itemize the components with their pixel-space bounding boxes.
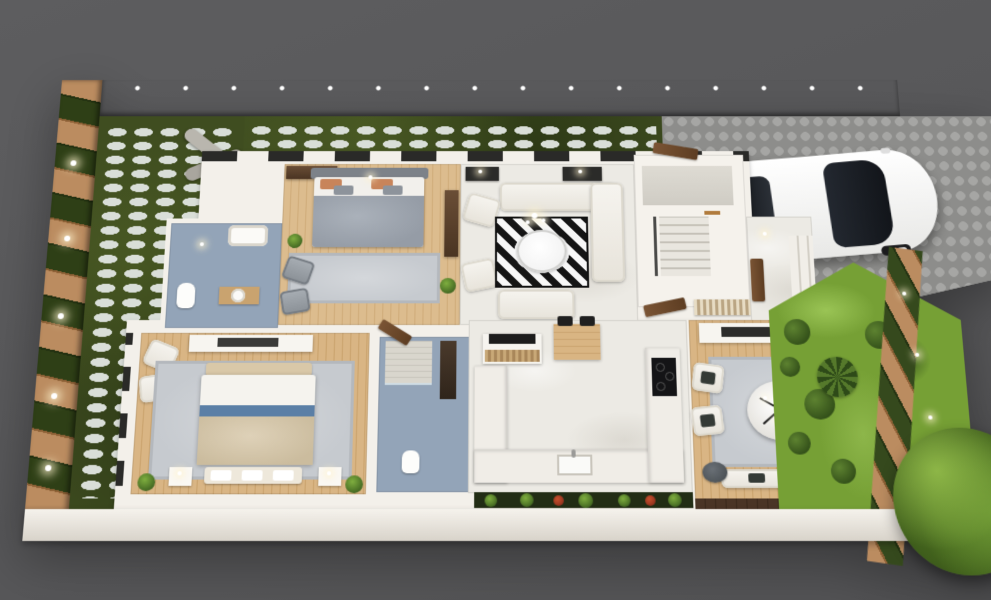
fence-light (928, 415, 932, 419)
room-kitchen (468, 320, 693, 493)
blanket-grey (312, 196, 424, 247)
toilet (402, 450, 420, 473)
plot-front-wall (22, 509, 967, 541)
chandelier-bulb (541, 219, 545, 223)
pillow-grey (334, 186, 354, 195)
black-chair (580, 316, 595, 326)
room-bedroom2 (278, 164, 461, 325)
console-lamp (578, 170, 582, 174)
nightstand (168, 467, 192, 486)
console-table (466, 167, 499, 181)
kitchen-sink (557, 455, 593, 476)
chandelier-bulb (526, 220, 530, 224)
bed (312, 177, 424, 247)
fence-light (902, 292, 906, 296)
potted-plant (287, 234, 302, 248)
corner-sofa-arm (590, 183, 625, 282)
bar-top (489, 334, 536, 344)
planter-strip (474, 492, 693, 508)
fence-light (915, 353, 919, 357)
side-stool (702, 462, 728, 483)
rattan-front (485, 350, 540, 362)
shower-glass (385, 383, 432, 385)
black-chair (557, 316, 572, 326)
slatted-screen (694, 299, 751, 315)
potted-plant (345, 475, 363, 493)
stair-handrail (704, 211, 720, 215)
stair-landing (642, 166, 734, 205)
plot (22, 80, 967, 541)
red-flowers (553, 495, 564, 506)
breakfast-table (554, 324, 601, 360)
car-mirror (880, 148, 891, 154)
console-table (563, 167, 602, 181)
tv-cabinet (444, 190, 458, 257)
toilet (176, 283, 196, 308)
nightstand (318, 467, 341, 486)
room-bathroom1 (159, 219, 287, 333)
render-stage (0, 0, 991, 600)
bar-island (483, 334, 542, 364)
porch-light (763, 232, 767, 236)
room-stair-hall (634, 155, 751, 307)
beige-throw (197, 416, 315, 465)
armchair-white (460, 258, 498, 293)
room-master-bedroom (130, 333, 369, 494)
bath-vanity (440, 341, 457, 399)
potted-plant (137, 473, 156, 491)
dresser-top (217, 338, 278, 347)
armchair-white (691, 362, 724, 394)
stair-rail (653, 217, 658, 276)
staircase (659, 217, 711, 276)
armchair (280, 287, 311, 315)
front-yard-top (243, 116, 663, 155)
armchair-white (690, 405, 725, 437)
master-bed (197, 375, 316, 465)
chandelier-bulb (763, 396, 767, 400)
foot-bench (204, 467, 302, 484)
bathtub (228, 225, 269, 246)
loveseat (498, 290, 575, 319)
room-living (460, 164, 639, 325)
basin (231, 289, 246, 303)
boundary-wall-top (100, 80, 900, 116)
vanity (219, 287, 260, 305)
potted-plant (440, 278, 456, 294)
ceiling-light (200, 242, 204, 246)
faucet (571, 449, 575, 457)
glass-coffee-table (517, 230, 567, 272)
room-master-bath (372, 333, 475, 496)
red-flowers (645, 495, 656, 506)
cooktop (651, 358, 677, 396)
dresser (189, 335, 313, 352)
front-door (750, 259, 765, 302)
shower (385, 341, 432, 383)
stepping-stones (247, 124, 657, 150)
pillow-grey (383, 186, 403, 195)
blue-stripe (199, 405, 314, 416)
chandelier (532, 213, 538, 219)
console-lamp (478, 170, 482, 174)
